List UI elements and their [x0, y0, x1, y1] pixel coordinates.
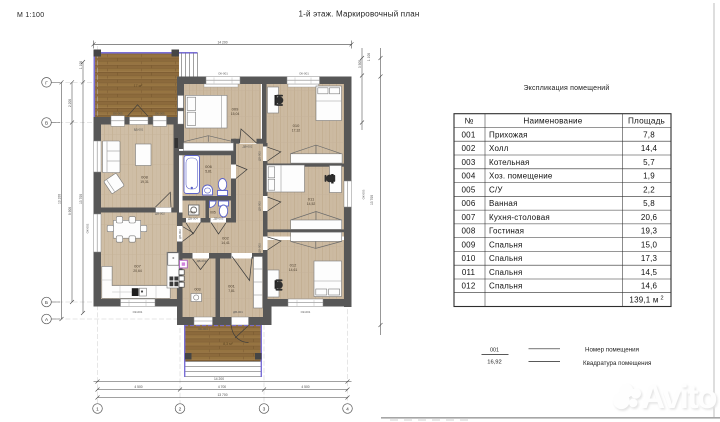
svg-text:14,5: 14,5 [641, 268, 658, 277]
svg-text:006: 006 [205, 164, 212, 169]
svg-text:Прихожая: Прихожая [489, 130, 528, 139]
svg-text:ДВ-002: ДВ-002 [197, 259, 207, 263]
svg-text:004: 004 [462, 172, 476, 181]
svg-text:14,61: 14,61 [289, 268, 298, 272]
svg-text:003: 003 [194, 288, 200, 292]
svg-text:ДВ-002: ДВ-002 [258, 243, 262, 253]
svg-text:ОК-001: ОК-001 [299, 72, 309, 76]
svg-text:15,0: 15,0 [641, 240, 658, 249]
svg-text:5,8: 5,8 [643, 199, 655, 208]
svg-text:4 500: 4 500 [134, 385, 142, 389]
svg-text:17,32: 17,32 [292, 129, 301, 133]
svg-text:011: 011 [462, 268, 476, 277]
svg-text:001: 001 [462, 130, 476, 139]
svg-text:Кухня-столовая: Кухня-столовая [489, 213, 550, 222]
svg-text:Спальня: Спальня [489, 282, 523, 291]
svg-text:Спальня: Спальня [489, 268, 523, 277]
svg-text:13 700: 13 700 [370, 195, 374, 205]
svg-text:ОК-001: ОК-001 [133, 310, 143, 314]
svg-text:012: 012 [290, 263, 297, 268]
svg-text:ДВ-002: ДВ-002 [258, 201, 262, 211]
svg-text:14,41: 14,41 [221, 241, 230, 245]
svg-text:13 700: 13 700 [217, 393, 227, 397]
svg-text:2: 2 [179, 406, 182, 412]
svg-text:7,81: 7,81 [228, 289, 235, 293]
svg-text:Спальня: Спальня [489, 240, 523, 249]
svg-text:5,7: 5,7 [643, 158, 655, 167]
svg-text:19,3: 19,3 [641, 227, 658, 236]
svg-text:003: 003 [462, 158, 476, 167]
svg-text:5,81: 5,81 [205, 170, 212, 174]
svg-text:М 1:100: М 1:100 [17, 12, 44, 19]
svg-text:15,04: 15,04 [231, 112, 240, 116]
svg-text:ДВ-004: ДВ-004 [188, 217, 198, 221]
svg-text:002: 002 [222, 236, 229, 241]
svg-text:Холл: Холл [489, 144, 509, 153]
svg-text:ОК-003: ОК-003 [362, 189, 366, 199]
svg-text:14 200: 14 200 [217, 40, 227, 44]
svg-text:20,64: 20,64 [133, 269, 142, 273]
svg-text:4: 4 [346, 406, 349, 412]
svg-text:139,1 м: 139,1 м [629, 296, 658, 305]
svg-text:002: 002 [462, 144, 476, 153]
svg-text:ОК-002: ОК-002 [86, 223, 90, 233]
svg-text:ДВ-001: ДВ-001 [233, 310, 243, 314]
svg-text:ДВ-002: ДВ-002 [155, 212, 165, 216]
svg-text:Котельная: Котельная [489, 158, 530, 167]
svg-text:012: 012 [462, 282, 476, 291]
svg-text:005: 005 [462, 185, 476, 194]
svg-text:Спальня: Спальня [489, 254, 523, 263]
svg-text:007: 007 [462, 213, 476, 222]
svg-text:Наименование: Наименование [523, 117, 582, 126]
svg-text:14,52: 14,52 [307, 202, 316, 206]
svg-text:9 900: 9 900 [68, 207, 72, 215]
svg-text:2: 2 [661, 296, 664, 302]
svg-text:1 100: 1 100 [79, 61, 83, 69]
svg-text:14,6: 14,6 [641, 282, 658, 291]
svg-text:ОК-005: ОК-005 [155, 112, 165, 116]
svg-text:011: 011 [308, 197, 315, 202]
svg-text:009: 009 [232, 107, 239, 112]
svg-text:20,6: 20,6 [641, 213, 658, 222]
svg-text:№: № [465, 117, 474, 126]
svg-text:ВД-001: ВД-001 [134, 128, 144, 132]
svg-text:7,8: 7,8 [643, 130, 655, 139]
svg-text:19,31: 19,31 [140, 180, 149, 184]
svg-text:Хоз. помещение: Хоз. помещение [489, 172, 553, 181]
svg-text:Б: Б [45, 300, 48, 305]
svg-text:009: 009 [462, 240, 476, 249]
svg-text:010: 010 [462, 254, 476, 263]
svg-text:8,3 м²: 8,3 м² [223, 342, 233, 346]
svg-text:005: 005 [210, 211, 216, 215]
svg-text:17 м²: 17 м² [134, 84, 143, 88]
svg-text:ДВ-002: ДВ-002 [178, 229, 182, 239]
svg-text:ДВ-002: ДВ-002 [258, 151, 262, 161]
svg-text:008: 008 [141, 175, 148, 180]
svg-text:ОК-004: ОК-004 [198, 327, 208, 331]
svg-text:001: 001 [228, 284, 235, 289]
svg-text:3 500: 3 500 [358, 60, 362, 68]
svg-text:ОК-005: ОК-005 [113, 112, 123, 116]
svg-text:006: 006 [462, 199, 476, 208]
svg-text:Гостиная: Гостиная [489, 227, 524, 236]
svg-text:ОК-001: ОК-001 [301, 310, 311, 314]
svg-text:010: 010 [293, 123, 300, 128]
svg-text:14,4: 14,4 [641, 144, 658, 153]
svg-text:14 200: 14 200 [214, 377, 224, 381]
svg-text:Номер помещения: Номер помещения [585, 346, 639, 353]
svg-text:3: 3 [263, 406, 266, 412]
svg-text:2 200: 2 200 [68, 99, 72, 107]
svg-text:008: 008 [462, 227, 476, 236]
svg-text:2,2: 2,2 [643, 185, 655, 194]
svg-text:1,9: 1,9 [643, 172, 655, 181]
svg-text:17,3: 17,3 [641, 254, 658, 263]
svg-text:Площадь: Площадь [628, 117, 665, 126]
svg-text:1-й этаж. Маркировочный план: 1-й этаж. Маркировочный план [299, 10, 420, 19]
svg-text:004: 004 [189, 211, 195, 215]
svg-text:1 100: 1 100 [367, 53, 371, 61]
svg-text:001: 001 [490, 348, 499, 354]
svg-text:ДВ-002: ДВ-002 [243, 145, 253, 149]
svg-text:Квадратура помещения: Квадратура помещения [583, 360, 651, 367]
svg-text:13 100: 13 100 [57, 194, 61, 204]
svg-text:16,92: 16,92 [487, 360, 502, 366]
svg-text:4 500: 4 500 [301, 385, 309, 389]
svg-text:ОК-001: ОК-001 [218, 72, 228, 76]
svg-text:Avito: Avito [641, 379, 717, 416]
svg-text:4 700: 4 700 [218, 385, 226, 389]
svg-text:007: 007 [134, 264, 141, 269]
svg-text:13 700: 13 700 [79, 194, 83, 204]
svg-text:ДВ-003: ДВ-003 [214, 217, 224, 221]
svg-text:Экспликация помещений: Экспликация помещений [523, 84, 609, 92]
svg-text:1: 1 [96, 406, 99, 412]
svg-text:Ванная: Ванная [489, 199, 518, 208]
svg-text:С/У: С/У [489, 185, 503, 194]
svg-text:В: В [45, 121, 48, 126]
